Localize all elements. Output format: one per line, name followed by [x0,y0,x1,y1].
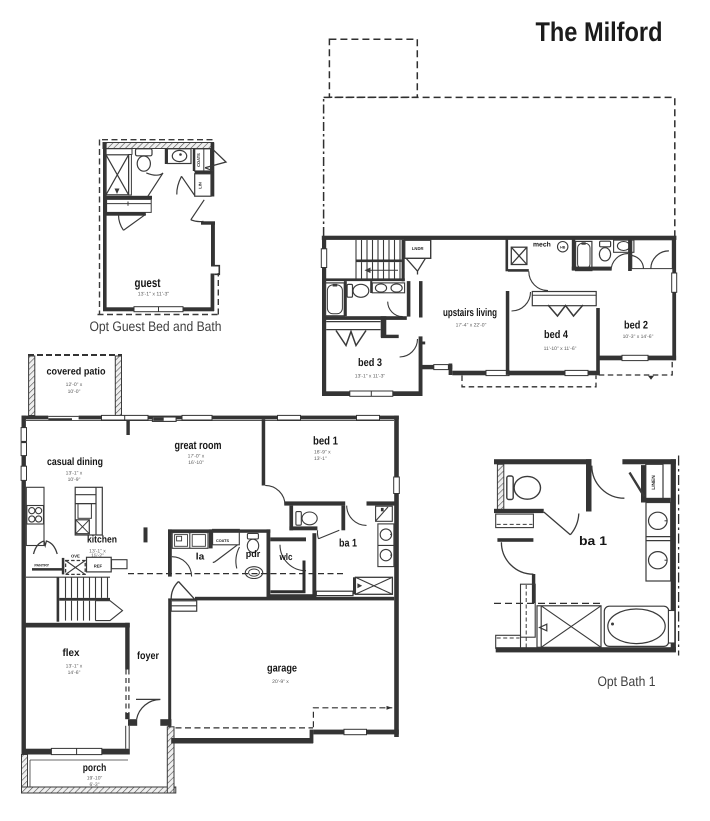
svg-text:COATS: COATS [196,153,201,167]
svg-text:11'-10" x 11'-6": 11'-10" x 11'-6" [544,346,577,352]
svg-text:17'-4" x 22'-0": 17'-4" x 22'-0" [456,323,487,329]
svg-text:10'-0": 10'-0" [68,389,81,395]
svg-text:HB: HB [560,245,566,249]
svg-text:ba 1: ba 1 [339,538,357,550]
svg-text:17'-0" x: 17'-0" x [188,454,205,460]
svg-text:13'-1": 13'-1" [314,456,327,462]
svg-text:wlc: wlc [279,552,293,563]
svg-text:13'-1" x: 13'-1" x [66,471,83,477]
svg-text:guest: guest [135,276,162,290]
svg-text:10'-3" x 14'-6": 10'-3" x 14'-6" [623,334,654,340]
svg-text:16'-10": 16'-10" [188,460,204,466]
svg-text:garage: garage [267,663,297,675]
svg-text:mech: mech [533,241,551,248]
svg-text:LIN: LIN [198,182,203,189]
svg-text:Opt Bath 1: Opt Bath 1 [598,674,656,689]
svg-text:LINEN: LINEN [651,475,657,490]
svg-text:The Milford: The Milford [536,17,663,47]
svg-text:13'-1" x 11'-3": 13'-1" x 11'-3" [138,292,170,298]
svg-text:13'-1" x 11'-3": 13'-1" x 11'-3" [355,374,386,380]
svg-text:bed 2: bed 2 [624,320,648,332]
svg-text:13'-1" x: 13'-1" x [66,664,83,670]
svg-text:bed 1: bed 1 [313,436,338,448]
svg-text:foyer: foyer [137,650,159,662]
svg-text:15'-2": 15'-2" [91,553,104,559]
svg-text:la: la [196,552,205,563]
svg-text:12'-0" x: 12'-0" x [66,382,83,388]
svg-text:bed 3: bed 3 [358,357,382,369]
svg-text:upstairs living: upstairs living [443,307,497,319]
svg-text:10'-9": 10'-9" [68,477,81,483]
svg-text:pdr: pdr [246,549,261,560]
svg-text:great room: great room [175,440,222,452]
svg-text:PANTRY: PANTRY [34,564,49,568]
svg-text:19'-10": 19'-10" [87,776,103,782]
svg-text:casual dining: casual dining [47,456,103,468]
svg-text:bed 4: bed 4 [544,329,569,341]
svg-text:OVE: OVE [71,554,80,559]
svg-text:covered patio: covered patio [47,367,106,378]
svg-text:14'-6": 14'-6" [68,670,81,676]
svg-text:porch: porch [83,762,107,774]
svg-text:LNDR: LNDR [412,246,424,251]
svg-text:REF: REF [94,563,103,568]
svg-text:ba 1: ba 1 [579,534,607,548]
svg-text:20'-9" x: 20'-9" x [272,679,289,685]
svg-text:6'-3": 6'-3" [90,782,100,788]
svg-text:16'-9" x: 16'-9" x [314,450,331,456]
svg-text:kitchen: kitchen [87,535,117,546]
svg-text:flex: flex [63,647,80,659]
svg-text:COATS: COATS [216,539,229,543]
svg-text:Opt Guest Bed and Bath: Opt Guest Bed and Bath [90,319,222,334]
